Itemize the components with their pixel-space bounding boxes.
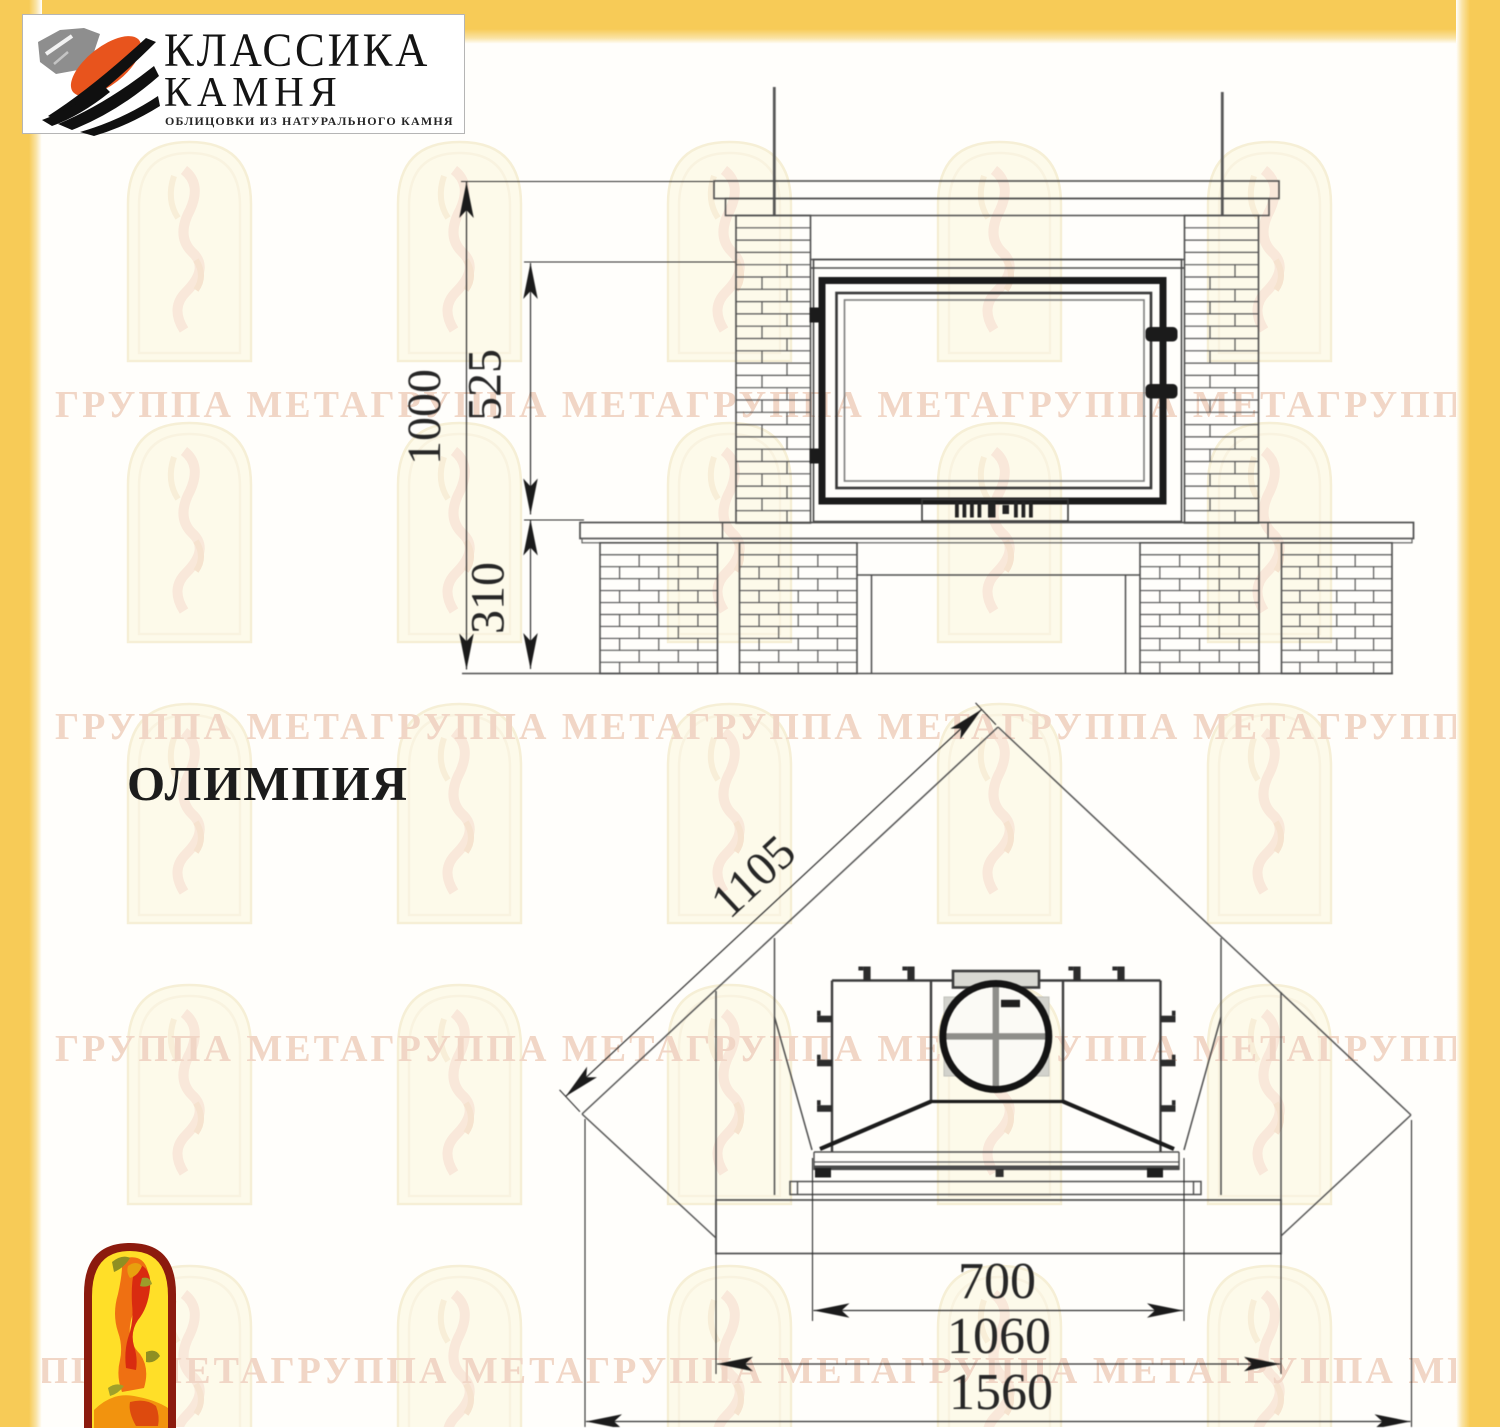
svg-text:525: 525 [459,349,512,421]
svg-text:1060: 1060 [947,1308,1051,1365]
svg-text:1000: 1000 [398,369,451,465]
svg-text:1105: 1105 [701,825,806,928]
svg-text:700: 700 [958,1253,1036,1310]
svg-text:1560: 1560 [949,1364,1053,1421]
svg-text:310: 310 [462,562,515,634]
